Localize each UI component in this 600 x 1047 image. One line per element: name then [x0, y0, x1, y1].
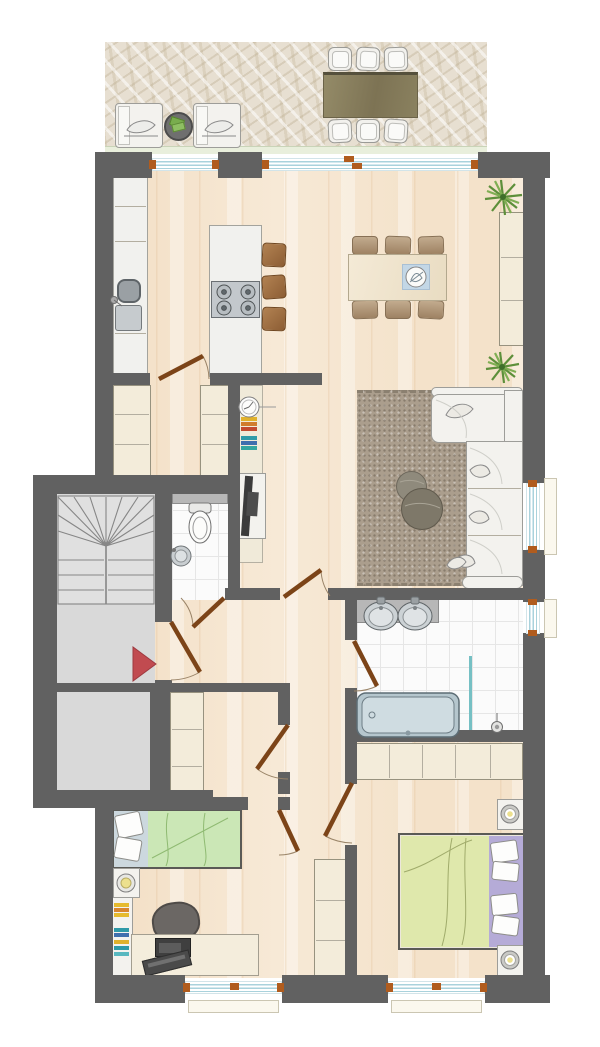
faucet-icon: [111, 297, 123, 307]
washbasin-icon: [171, 546, 191, 566]
table-highlight-lines: [400, 480, 440, 508]
bed-sketch-lines: [152, 813, 472, 946]
plate-icon: [406, 267, 426, 287]
wall-clock-icon: [238, 397, 276, 417]
plant-icon: [485, 180, 522, 383]
shower-head-icon: [492, 713, 503, 733]
door-leaf-wc: [193, 598, 224, 627]
lamp-icon: [117, 805, 519, 969]
stairs-icon: [58, 496, 154, 604]
door-leaf-living: [284, 570, 321, 597]
toilet-icon: [189, 503, 211, 543]
sofa-pillows: [436, 400, 502, 574]
double-washbasin-icon: [364, 597, 432, 630]
door-leaves: [159, 356, 377, 851]
door-leaf-entrance: [171, 622, 200, 672]
entrance-marker: [133, 647, 156, 681]
door-leaf-bedroom-right: [325, 783, 352, 836]
bathtub-icon: [357, 693, 459, 737]
floor-plan: [0, 0, 600, 1047]
linework-overlay: [0, 0, 600, 1047]
door-arcs: [171, 356, 377, 855]
door-leaf-bathroom: [354, 641, 377, 686]
lounger-towel-icon: [124, 121, 236, 136]
burners-icon: [217, 285, 255, 315]
door-leaf-closet: [257, 725, 288, 769]
door-leaf-storage: [159, 356, 203, 379]
door-leaf-bedroom-left: [279, 810, 298, 851]
